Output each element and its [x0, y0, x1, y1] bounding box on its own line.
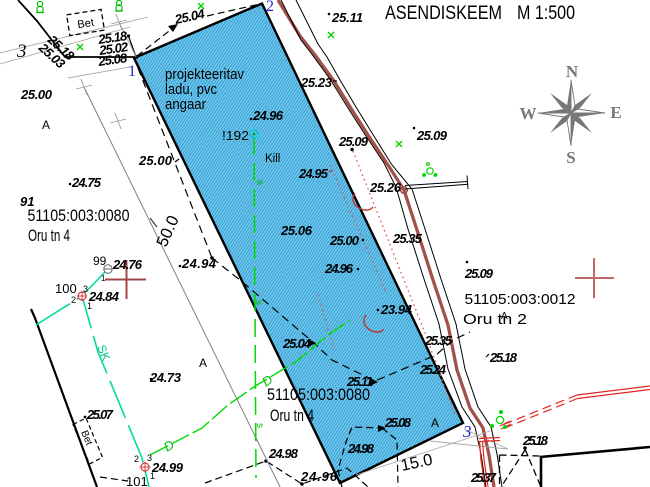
svg-text:3: 3: [16, 41, 27, 62]
svg-text:25.11: 25.11: [331, 10, 363, 25]
svg-text:Kill: Kill: [265, 153, 280, 165]
svg-text:A: A: [199, 356, 207, 370]
svg-text:Oru tn 4: Oru tn 4: [28, 226, 70, 245]
svg-text:Oru tn 4: Oru tn 4: [270, 406, 314, 425]
svg-text:100: 100: [55, 281, 77, 296]
svg-text:24.75: 24.75: [71, 175, 102, 190]
svg-text:Oru tn 2: Oru tn 2: [463, 311, 527, 328]
svg-text:51105:003:0080: 51105:003:0080: [28, 206, 130, 225]
svg-text:1: 1: [101, 274, 106, 283]
svg-text:24.99: 24.99: [151, 460, 184, 475]
svg-text:23.94: 23.94: [380, 302, 413, 317]
svg-text:E: E: [610, 103, 621, 122]
svg-text:S: S: [566, 148, 575, 167]
svg-text:ASENDISKEEM: ASENDISKEEM: [385, 2, 502, 24]
svg-text:2: 2: [266, 0, 274, 15]
svg-text:ladu, pvc: ladu, pvc: [165, 82, 217, 98]
svg-text:25.18: 25.18: [522, 433, 549, 448]
svg-text:25.11: 25.11: [346, 374, 373, 389]
svg-text:24.98: 24.98: [268, 446, 299, 461]
svg-text:A: A: [42, 118, 50, 132]
svg-text:s: s: [253, 300, 264, 305]
svg-text:A: A: [431, 416, 439, 430]
svg-text:W: W: [520, 104, 537, 123]
svg-text:25.18: 25.18: [489, 350, 518, 365]
svg-text:angaar: angaar: [165, 97, 206, 113]
svg-text:99: 99: [93, 254, 107, 268]
svg-text:25.08: 25.08: [384, 415, 412, 430]
svg-text:A: A: [501, 311, 508, 322]
svg-text:24.95: 24.95: [298, 166, 329, 181]
svg-text:24.96: 24.96: [300, 469, 338, 484]
svg-text:24.84: 24.84: [88, 289, 120, 304]
svg-text:25.09: 25.09: [338, 134, 369, 149]
svg-text:25.24: 25.24: [419, 362, 447, 377]
svg-text:!192: !192: [222, 129, 249, 143]
svg-text:s: s: [254, 423, 265, 428]
svg-text:51105:003:0012: 51105:003:0012: [465, 291, 576, 308]
svg-text:24.96: 24.96: [252, 108, 284, 123]
svg-text:25.04: 25.04: [282, 336, 312, 351]
svg-text:25.00: 25.00: [20, 87, 53, 102]
svg-text:24.94: 24.94: [181, 256, 217, 271]
svg-text:s: s: [254, 180, 265, 185]
svg-text:1: 1: [128, 63, 136, 80]
svg-text:25.00: 25.00: [138, 153, 173, 168]
svg-text:25.09: 25.09: [416, 128, 448, 143]
svg-text:24.96: 24.96: [324, 261, 354, 276]
svg-text:25.07: 25.07: [86, 407, 114, 422]
svg-text:91: 91: [20, 194, 34, 209]
svg-text:25.26: 25.26: [369, 180, 402, 195]
svg-text:3: 3: [462, 422, 472, 441]
svg-text:24.73: 24.73: [149, 370, 182, 385]
svg-text:Bet: Bet: [77, 17, 95, 31]
svg-text:101: 101: [126, 474, 148, 487]
svg-text:25.09: 25.09: [464, 266, 494, 281]
svg-text:24.76: 24.76: [112, 257, 143, 272]
svg-text:projekteeritav: projekteeritav: [165, 67, 245, 83]
svg-text:N: N: [566, 62, 579, 81]
svg-text:25.06: 25.06: [280, 223, 313, 238]
svg-text:25.23: 25.23: [300, 75, 333, 90]
svg-text:M 1:500: M 1:500: [517, 2, 575, 24]
svg-text:25.35: 25.35: [392, 231, 423, 246]
svg-text:2: 2: [134, 454, 139, 464]
svg-text:25.00: 25.00: [329, 233, 360, 248]
svg-text:3: 3: [83, 284, 88, 294]
svg-text:25.37: 25.37: [470, 470, 497, 485]
svg-text:24.98: 24.98: [347, 441, 375, 456]
svg-text:2: 2: [71, 295, 76, 305]
svg-text:25.35: 25.35: [424, 333, 453, 348]
